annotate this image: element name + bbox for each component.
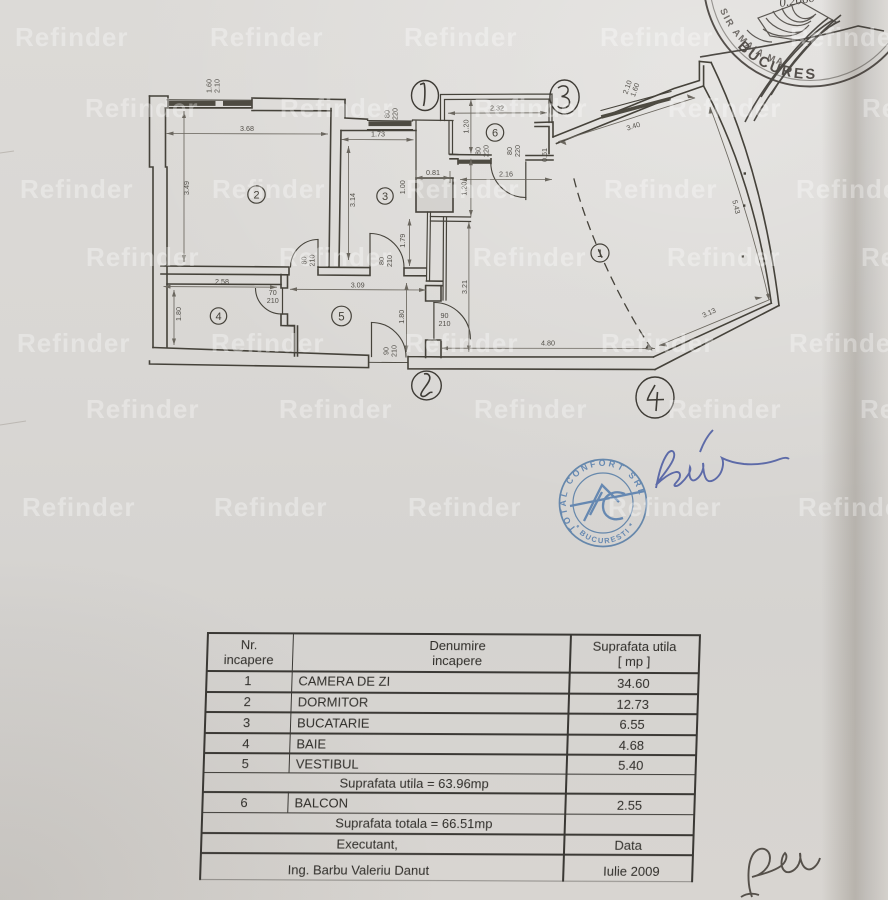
svg-text:5: 5 <box>338 312 344 324</box>
svg-text:220: 220 <box>482 145 491 157</box>
svg-text:1: 1 <box>597 248 603 260</box>
svg-text:3.21: 3.21 <box>460 280 469 294</box>
svg-text:3: 3 <box>382 191 388 203</box>
svg-text:3.40: 3.40 <box>625 120 641 133</box>
svg-text:3.14: 3.14 <box>348 193 357 207</box>
svg-text:4.80: 4.80 <box>541 339 555 348</box>
svg-text:1.80: 1.80 <box>397 310 406 324</box>
svg-text:2.58: 2.58 <box>215 277 229 286</box>
svg-text:220: 220 <box>513 145 522 157</box>
svg-text:210: 210 <box>267 296 279 305</box>
svg-text:6: 6 <box>492 128 498 140</box>
svg-text:3.09: 3.09 <box>351 281 365 290</box>
svg-text:1.73: 1.73 <box>371 130 385 139</box>
svg-text:2.10: 2.10 <box>213 79 222 93</box>
svg-text:1.80: 1.80 <box>174 307 183 321</box>
svg-text:5.43: 5.43 <box>730 199 742 215</box>
svg-text:1.79: 1.79 <box>398 234 407 248</box>
svg-text:4: 4 <box>215 311 221 323</box>
svg-text:0.2060: 0.2060 <box>778 0 816 10</box>
svg-text:210: 210 <box>390 345 399 357</box>
svg-text:210: 210 <box>439 319 451 328</box>
svg-text:3.68: 3.68 <box>240 124 254 133</box>
svg-text:3.49: 3.49 <box>182 181 191 195</box>
svg-text:3.13: 3.13 <box>701 306 717 320</box>
svg-text:0.61: 0.61 <box>540 148 549 162</box>
svg-text:1.20: 1.20 <box>462 120 471 134</box>
